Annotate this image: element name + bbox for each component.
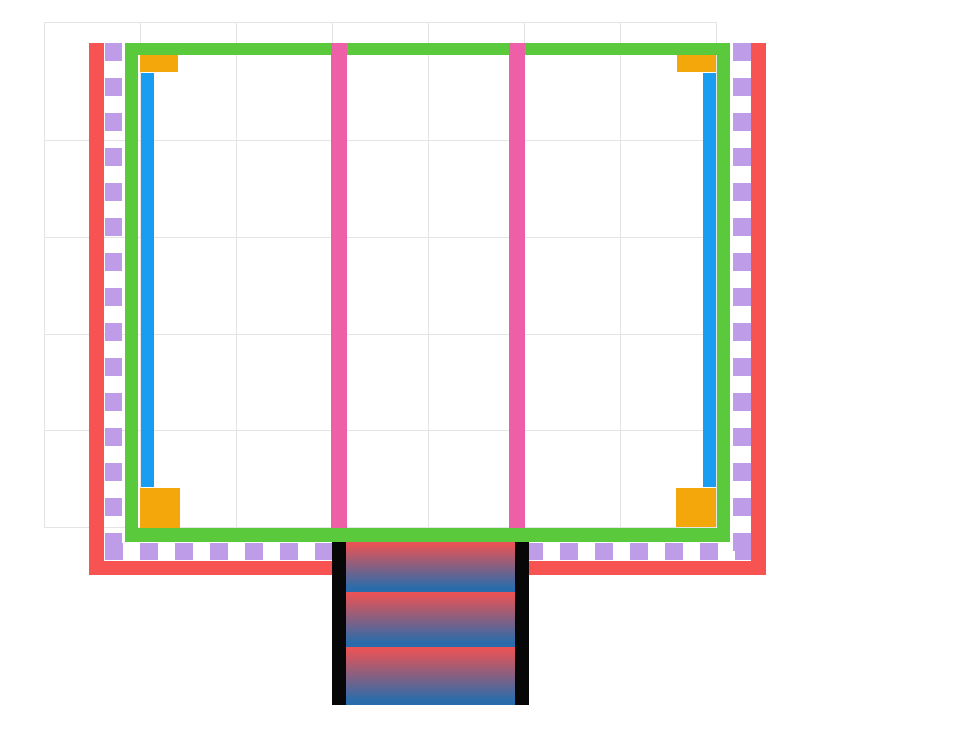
stair-step-3[interactable] (346, 647, 515, 705)
outer-wall-right[interactable] (751, 43, 766, 575)
corner-pad-top-right[interactable] (677, 55, 716, 72)
rail-left[interactable] (141, 73, 154, 487)
divider-left[interactable] (331, 43, 347, 528)
corner-pad-bottom-left[interactable] (140, 488, 180, 528)
rail-right[interactable] (703, 73, 716, 487)
corner-pad-bottom-right[interactable] (676, 488, 716, 527)
divider-right[interactable] (509, 43, 525, 528)
stair-step-2[interactable] (346, 592, 515, 647)
dashed-line-right[interactable] (733, 43, 751, 560)
inner-frame-bottom[interactable] (125, 528, 730, 542)
stair-step-1[interactable] (346, 542, 515, 592)
inner-frame-left[interactable] (125, 43, 138, 542)
shapes-layer (0, 0, 960, 741)
dashed-line-left[interactable] (105, 43, 122, 560)
drawing-canvas (0, 0, 960, 741)
inner-frame-right[interactable] (717, 43, 730, 542)
stair-stringer-right[interactable] (515, 542, 529, 705)
outer-wall-left[interactable] (89, 43, 104, 575)
corner-pad-top-left[interactable] (140, 55, 178, 72)
inner-frame-top[interactable] (125, 43, 730, 55)
stair-stringer-left[interactable] (332, 542, 346, 705)
